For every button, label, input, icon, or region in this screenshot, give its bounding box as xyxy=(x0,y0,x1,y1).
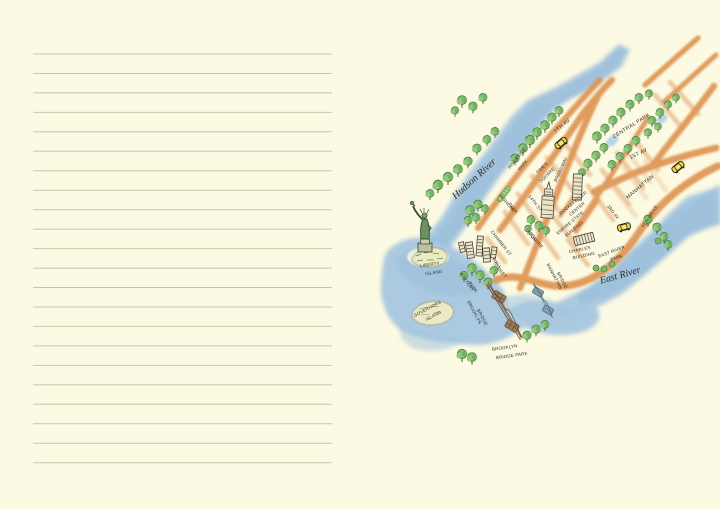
svg-text:BROOKLYN: BROOKLYN xyxy=(492,343,518,352)
svg-text:BRIDGE PARK: BRIDGE PARK xyxy=(496,351,528,360)
